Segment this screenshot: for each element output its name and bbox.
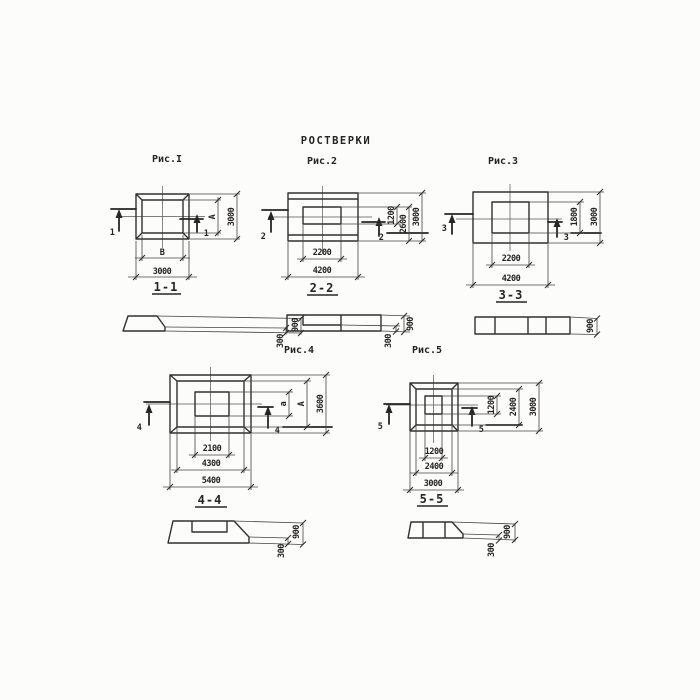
section-5-5-profile — [408, 522, 463, 538]
figure-2-cut-mark-left: 2 — [261, 232, 266, 242]
figure-5-centerlines — [386, 375, 478, 443]
figure-3-cut-mark-right: 3 — [564, 233, 569, 243]
figure-3-inner-height-dim: 1800 — [570, 207, 580, 226]
figure-4-outer-height-dim: 3600 — [316, 394, 326, 413]
figure-1-cut-mark-right: 1 — [204, 229, 209, 239]
figure-5-cut-mark-left: 5 — [378, 422, 383, 432]
figure-2-outer-width-dim: 4200 — [313, 266, 332, 276]
figure-3-dimension-ticks — [470, 189, 603, 288]
figure-3-inner-width-dim: 2200 — [502, 254, 521, 264]
scanned-drawing-sheet: РОСТВЕРКИ Рис.I 1 1 В 3000 А 3000 1-1 90… — [0, 0, 700, 700]
figure-5-dimension-ticks — [407, 380, 542, 493]
section-3-3-total-height-dim: 900 — [586, 319, 596, 333]
section-3-3-profile — [475, 317, 570, 334]
figure-5-outer-width-dim: 3000 — [424, 479, 443, 489]
section-2-2-leader-lines — [341, 315, 410, 333]
figure-2-centerlines — [268, 186, 372, 254]
figure-1-outer-height-dim: 3000 — [227, 207, 237, 226]
section-2-2-total-height-dim: 900 — [406, 317, 416, 331]
figure-1-plan: Рис.I 1 1 В 3000 А 3000 1-1 — [110, 154, 240, 294]
figure-2-cut-mark-right: 2 — [379, 233, 384, 243]
figure-5-section-label: 5-5 — [420, 492, 445, 506]
figure-5-pile-cap-outline — [410, 383, 458, 431]
figure-1-dimension-ticks — [133, 191, 240, 280]
figure-5-inner-width-dim: 1200 — [425, 447, 444, 457]
figure-1-cut-mark-left: 1 — [110, 228, 115, 238]
figure-2-mid-height-dim: 2600 — [399, 214, 409, 233]
cut-arrow-icon — [146, 404, 153, 413]
figure-5-mid-width-dim: 2400 — [425, 462, 444, 472]
grillage-drawing: РОСТВЕРКИ Рис.I 1 1 В 3000 А 3000 1-1 90… — [0, 0, 700, 700]
section-3-3-view: 900 — [475, 316, 600, 338]
figure-4-section-label: 4-4 — [198, 493, 223, 507]
section-4-4-total-height-dim: 900 — [292, 525, 302, 539]
figure-5-plan: Рис.5 5 5 1200 2400 3000 1200 2400 3000 … — [378, 345, 543, 506]
figure-1-caption: Рис.I — [152, 154, 182, 165]
figure-4-mid-width-dim: 4300 — [202, 459, 221, 469]
section-4-4-view: 900 300 — [168, 520, 306, 558]
figure-3-caption: Рис.3 — [488, 156, 518, 167]
figure-1-section-label: 1-1 — [154, 280, 179, 294]
drawing-title: РОСТВЕРКИ — [301, 135, 371, 147]
figure-3-section-label: 3-3 — [499, 288, 524, 302]
figure-5-inner-height-dim: 1200 — [487, 395, 497, 414]
figure-4-caption: Рис.4 — [284, 345, 314, 356]
figure-2-caption: Рис.2 — [307, 156, 337, 167]
section-1-1-view: 900 300 — [123, 316, 304, 348]
figure-1-inner-height-dim: А — [208, 214, 218, 219]
section-1-1-leader-lines — [157, 316, 301, 335]
figure-2-inner-width-dim: 2200 — [313, 248, 332, 258]
cut-arrow-icon — [449, 214, 456, 223]
figure-5-cut-mark-right: 5 — [479, 425, 484, 435]
figure-3-outer-width-dim: 4200 — [502, 274, 521, 284]
figure-3-pile-cap-outline — [473, 192, 548, 243]
figure-3-cut-mark-left: 3 — [442, 224, 447, 234]
figure-1-dimension-lines — [128, 194, 240, 280]
section-4-4-step-height-dim: 300 — [277, 544, 287, 558]
figure-5-caption: Рис.5 — [412, 345, 442, 356]
figure-1-outer-width-dim: 3000 — [153, 267, 172, 277]
figure-5-outer-height-dim: 3000 — [529, 397, 539, 416]
figure-4-cut-mark-left: 4 — [137, 423, 142, 433]
figure-2-dimension-lines — [281, 193, 426, 280]
figure-4-inner-height-dim: а — [279, 401, 289, 406]
figure-2-inner-height-dim: 1200 — [387, 206, 397, 225]
figure-3-centerlines — [456, 184, 562, 251]
figure-3-dimension-lines — [466, 192, 604, 288]
figure-4-cut-mark-right: 4 — [275, 426, 280, 436]
figure-3-outer-height-dim: 3000 — [590, 207, 600, 226]
figure-2-section-label: 2-2 — [310, 281, 335, 295]
figure-5-mid-height-dim: 2400 — [509, 397, 519, 416]
figure-5-dimension-lines — [403, 383, 543, 493]
figure-2-plan: Рис.2 2 2 2200 4200 1200 2600 3000 2-2 — [261, 156, 428, 295]
figure-4-plan: Рис.4 4 4 2100 4300 5400 а А 3600 4-4 — [137, 345, 332, 507]
figure-4-mid-height-dim: А — [297, 401, 307, 406]
section-5-5-total-height-dim: 900 — [503, 525, 513, 539]
figure-4-inner-width-dim: 2100 — [203, 444, 222, 454]
figure-4-outer-width-dim: 5400 — [202, 476, 221, 486]
figure-5-section-cut-lines — [384, 404, 522, 426]
cut-arrow-icon — [268, 211, 275, 220]
section-4-4-profile — [168, 521, 249, 543]
section-1-1-profile — [123, 316, 165, 331]
cut-arrow-icon — [116, 209, 123, 218]
section-5-5-view: 900 300 — [408, 521, 518, 557]
figure-3-plan: Рис.3 3 3 2200 4200 1800 3000 3-3 — [442, 156, 604, 302]
section-2-2-step-height-dim: 300 — [384, 334, 394, 348]
section-1-1-total-height-dim: 900 — [291, 318, 301, 332]
section-5-5-step-height-dim: 300 — [487, 543, 497, 557]
section-2-2-view: 900 300 — [287, 313, 416, 348]
figure-2-outer-height-dim: 3000 — [412, 207, 422, 226]
figure-1-inner-width-dim: В — [160, 248, 165, 258]
